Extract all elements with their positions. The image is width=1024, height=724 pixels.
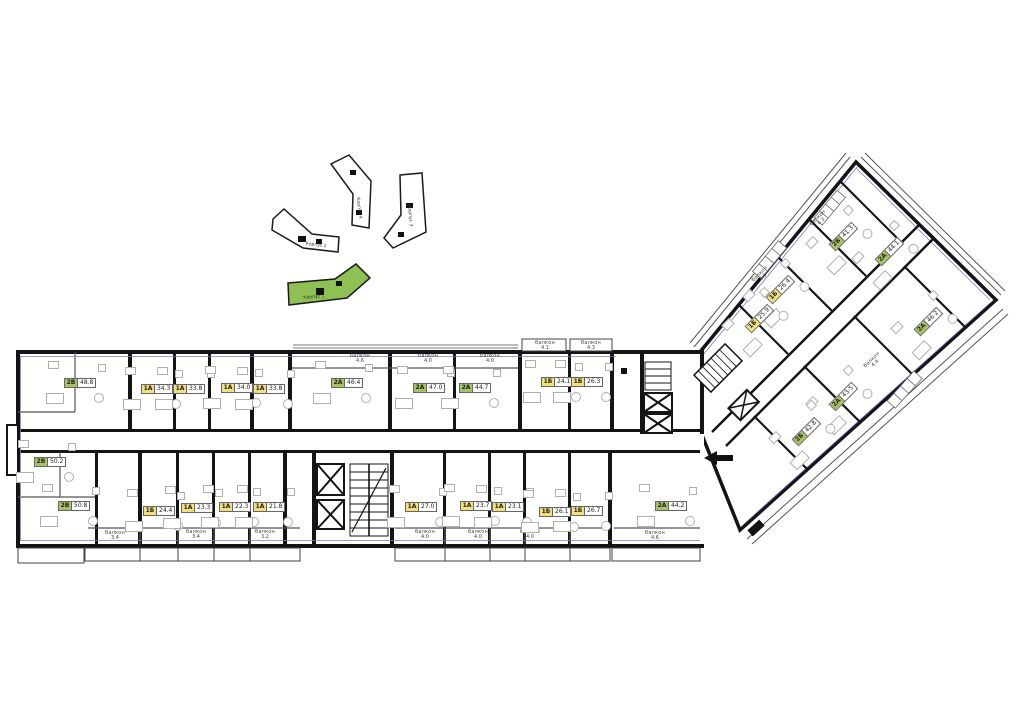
furniture-mark — [685, 516, 695, 526]
unit-area: 50.2 — [48, 458, 65, 466]
furniture-mark — [64, 472, 74, 482]
furniture-mark — [125, 521, 143, 532]
unit-badge[interactable]: 2А44.2 — [655, 501, 687, 511]
unit-type: 1А — [222, 384, 235, 392]
furniture-mark — [175, 370, 183, 378]
furniture-mark — [365, 364, 373, 372]
furniture-mark — [94, 393, 104, 403]
furniture-mark — [890, 321, 903, 334]
unit-badge[interactable]: 1Б26.3 — [571, 377, 603, 387]
furniture-mark — [361, 393, 371, 403]
unit-badge[interactable]: 1А33.8 — [173, 384, 205, 394]
furniture-mark — [205, 366, 216, 374]
unit-type: 2А — [332, 379, 345, 387]
furniture-mark — [444, 484, 455, 492]
furniture-mark — [125, 367, 136, 375]
furniture-mark — [768, 431, 781, 444]
furniture-mark — [18, 440, 29, 448]
unit-badge[interactable]: 2В50.8 — [58, 501, 90, 511]
unit-badge[interactable]: 1А34.0 — [221, 383, 253, 393]
furniture-mark — [237, 367, 248, 375]
furniture-mark — [255, 369, 263, 377]
unit-type: 2А — [414, 384, 427, 392]
furniture-mark — [493, 369, 501, 377]
unit-area: 26.3 — [585, 378, 602, 386]
balcony-label: балкон4.0 — [415, 530, 435, 540]
furniture-mark — [203, 485, 214, 493]
balcony-label: балкон4.0 — [418, 354, 438, 364]
furniture-mark — [523, 392, 541, 403]
unit-area: 48.8 — [78, 379, 95, 387]
unit-area: 33.8 — [187, 385, 204, 393]
unit-type: 2В — [35, 458, 48, 466]
furniture-mark — [287, 488, 295, 496]
unit-type: 2В — [59, 502, 72, 510]
furniture-mark — [721, 318, 734, 331]
furniture-mark — [601, 392, 611, 402]
furniture-mark — [780, 258, 791, 269]
furniture-mark — [742, 289, 755, 302]
unit-area: 50.8 — [72, 502, 89, 510]
furniture-mark — [826, 255, 847, 276]
unit-area: 41.3 — [839, 223, 857, 241]
furniture-mark — [860, 227, 874, 241]
unit-area: 22.3 — [233, 503, 250, 511]
furniture-mark — [48, 361, 59, 369]
furniture-mark — [605, 363, 613, 371]
unit-badge[interactable]: 2А44.7 — [459, 383, 491, 393]
unit-type: 1А — [254, 385, 267, 393]
furniture-mark — [315, 361, 326, 369]
unit-type: 1А — [174, 385, 187, 393]
furniture-mark — [235, 517, 253, 528]
furniture-mark — [40, 516, 58, 527]
balcony-label: балкон4.0 — [480, 354, 500, 364]
furniture-mark — [253, 488, 261, 496]
unit-badge[interactable]: 1А34.3 — [141, 384, 173, 394]
unit-area: 47.0 — [427, 384, 444, 392]
furniture-mark — [163, 518, 181, 529]
unit-badge[interactable]: 1А23.1 — [492, 502, 524, 512]
unit-type: 1Б — [144, 507, 157, 515]
unit-type: 1Б — [572, 507, 585, 515]
unit-badge[interactable]: 1Б26.1 — [539, 507, 571, 517]
furniture-mark — [637, 516, 655, 527]
balcony-label: балкон4.3 — [581, 341, 601, 351]
unit-area: 24.1 — [555, 378, 572, 386]
furniture-mark — [283, 517, 293, 527]
furniture-mark — [127, 489, 138, 497]
furniture-mark — [397, 366, 408, 374]
furniture-mark — [843, 365, 854, 376]
furniture-mark — [889, 220, 900, 231]
unit-area: 23.1 — [506, 503, 523, 511]
balcony-label: балкон4.4 — [863, 351, 884, 372]
unit-badge[interactable]: 1Б24.1 — [541, 377, 573, 387]
furniture-mark — [494, 487, 502, 495]
furniture-mark — [571, 392, 581, 402]
furniture-mark — [287, 370, 295, 378]
unit-type: 1Б — [572, 378, 585, 386]
balcony-label: балкон3.2 — [255, 530, 275, 540]
furniture-mark — [523, 490, 534, 498]
furniture-mark — [474, 517, 492, 528]
furniture-mark — [155, 399, 173, 410]
balcony-label: балкон4.3 — [751, 265, 772, 286]
unit-type: 1А — [406, 503, 419, 511]
furniture-mark — [395, 398, 413, 409]
balcony-label: балкон3.4 — [105, 531, 125, 541]
unit-area: 26.7 — [585, 507, 602, 515]
unit-type: 1Б — [542, 378, 555, 386]
unit-area: 42.8 — [802, 418, 820, 436]
unit-type: 1Б — [540, 508, 553, 516]
furniture-mark — [797, 280, 811, 294]
furniture-mark — [689, 487, 697, 495]
unit-type: 1А — [493, 503, 506, 511]
furniture-mark — [525, 360, 536, 368]
unit-type: 1А — [254, 503, 267, 511]
unit-area: 43.5 — [839, 383, 857, 401]
furniture-mark — [928, 290, 939, 301]
furniture-mark — [442, 516, 460, 527]
furniture-mark — [165, 486, 176, 494]
unit-badge[interactable]: 2Б41.3 — [829, 221, 859, 251]
furniture-mark — [123, 399, 141, 410]
furniture-mark — [441, 398, 459, 409]
unit-area: 27.0 — [419, 503, 436, 511]
furniture-mark — [789, 450, 810, 471]
furniture-mark — [157, 367, 168, 375]
unit-badge[interactable]: 2А46.4 — [331, 378, 363, 388]
balcony-label: балкон4.6 — [645, 531, 665, 541]
furniture-mark — [573, 493, 581, 501]
furniture-mark — [945, 312, 959, 326]
unit-type: 1А — [461, 502, 474, 510]
unit-area: 26.4 — [776, 276, 794, 294]
furniture-mark — [553, 392, 571, 403]
unit-badge[interactable]: 1А27.0 — [405, 502, 437, 512]
unit-type: 2А — [460, 384, 473, 392]
furniture-mark — [177, 492, 185, 500]
unit-badge[interactable]: 1Б26.7 — [571, 506, 603, 516]
unit-badge[interactable]: 2А44.1 — [875, 236, 905, 266]
furniture-mark — [601, 521, 611, 531]
balcony-label: балкон4.6 — [350, 354, 370, 364]
furniture-mark — [88, 516, 98, 526]
unit-area: 44.2 — [669, 502, 686, 510]
furniture-mark — [906, 242, 920, 256]
furniture-mark — [215, 489, 223, 497]
balcony-label: балкон3.4 — [186, 530, 206, 540]
unit-type: 2В — [65, 379, 78, 387]
unit-type: 1А — [142, 385, 155, 393]
unit-badge[interactable]: 2А46.2 — [914, 306, 944, 336]
furniture-mark — [92, 487, 100, 495]
furniture-mark — [203, 398, 221, 409]
furniture-mark — [742, 337, 763, 358]
furniture-mark — [443, 366, 454, 374]
unit-area: 33.8 — [267, 385, 284, 393]
unit-badge[interactable]: 1А23.3 — [181, 503, 213, 513]
furniture-mark — [575, 363, 583, 371]
unit-area: 34.3 — [155, 385, 172, 393]
unit-badge[interactable]: 1А23.7 — [460, 501, 492, 511]
furniture-mark — [476, 485, 487, 493]
furniture-mark — [911, 340, 932, 361]
furniture-mark — [860, 387, 874, 401]
balcony-label: балкон4.0 — [468, 530, 488, 540]
furniture-mark — [237, 485, 248, 493]
furniture-mark — [235, 399, 253, 410]
unit-area: 24.4 — [157, 507, 174, 515]
furniture-mark — [98, 364, 106, 372]
furniture-mark — [389, 485, 400, 493]
unit-type: 2А — [656, 502, 669, 510]
furniture-mark — [555, 489, 566, 497]
unit-badge[interactable]: 1А33.8 — [253, 384, 285, 394]
unit-area: 34.0 — [235, 384, 252, 392]
unit-badge[interactable]: 2В50.2 — [34, 457, 66, 467]
unit-area: 21.8 — [267, 503, 284, 511]
unit-area: 46.4 — [345, 379, 362, 387]
unit-badge[interactable]: 1А21.8 — [253, 502, 285, 512]
furniture-mark — [283, 399, 293, 409]
furniture-mark — [639, 484, 650, 492]
furniture-mark — [46, 393, 64, 404]
balcony-label: балкон4.3 — [809, 209, 830, 230]
unit-area: 44.7 — [473, 384, 490, 392]
furniture-mark — [68, 443, 76, 451]
furniture-mark — [489, 398, 499, 408]
furniture-mark — [805, 236, 818, 249]
unit-area: 44.1 — [885, 238, 903, 256]
furniture-mark — [555, 360, 566, 368]
badges-layer: 2В48.81А34.31А33.81А34.01А33.82А46.42А47… — [0, 0, 1024, 724]
furniture-mark — [387, 517, 405, 528]
unit-badge[interactable]: 2Б42.8 — [792, 416, 822, 446]
unit-area: 26.1 — [553, 508, 570, 516]
unit-area: 23.3 — [195, 504, 212, 512]
unit-type: 1А — [220, 503, 233, 511]
furniture-mark — [42, 484, 53, 492]
furniture-mark — [521, 522, 539, 533]
furniture-mark — [553, 521, 571, 532]
furniture-mark — [851, 251, 864, 264]
floor-plan-page: Корпус 4 Корпус 3 Корпус 2 Корпус 1 — [0, 0, 1024, 724]
furniture-mark — [313, 393, 331, 404]
unit-badge[interactable]: 1Б26.4 — [766, 274, 796, 304]
unit-badge[interactable]: 2В48.8 — [64, 378, 96, 388]
furniture-mark — [201, 517, 219, 528]
unit-badge[interactable]: 1Б24.4 — [143, 506, 175, 516]
unit-type: 1А — [182, 504, 195, 512]
unit-badge[interactable]: 2А47.0 — [413, 383, 445, 393]
furniture-mark — [843, 205, 854, 216]
furniture-mark — [872, 270, 893, 291]
unit-area: 23.7 — [474, 502, 491, 510]
unit-badge[interactable]: 2А43.5 — [829, 381, 859, 411]
unit-badge[interactable]: 1А22.3 — [219, 502, 251, 512]
balcony-label: балкон4.1 — [535, 341, 555, 351]
furniture-mark — [16, 472, 34, 483]
unit-area: 46.2 — [924, 308, 942, 326]
furniture-mark — [605, 492, 613, 500]
